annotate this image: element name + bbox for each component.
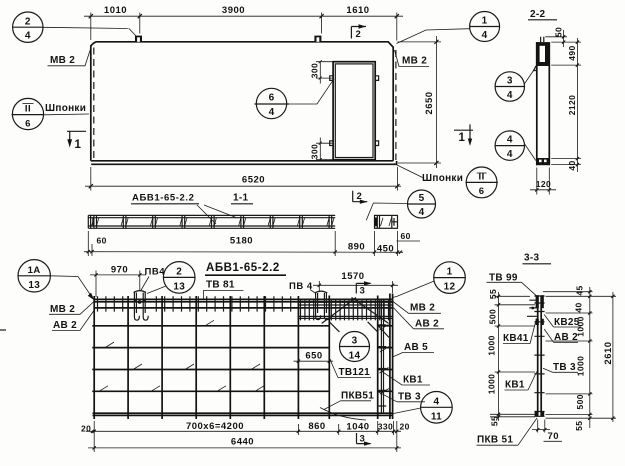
svg-text:АВ 2: АВ 2 (554, 332, 578, 343)
svg-text:1-1: 1-1 (233, 193, 248, 204)
svg-text:1: 1 (459, 132, 466, 144)
svg-text:ПВ 4: ПВ 4 (289, 281, 313, 292)
svg-text:700х6=4200: 700х6=4200 (186, 421, 244, 432)
svg-text:АБВ1-65-2.2: АБВ1-65-2.2 (206, 262, 280, 274)
svg-text:4: 4 (507, 135, 513, 146)
svg-text:АВ 5: АВ 5 (404, 342, 428, 353)
svg-text:20: 20 (400, 422, 410, 432)
svg-text:3-3: 3-3 (524, 253, 539, 264)
svg-text:3: 3 (352, 336, 358, 347)
svg-text:6: 6 (479, 186, 485, 197)
svg-text:12: 12 (444, 282, 456, 293)
svg-text:2610: 2610 (603, 341, 614, 364)
svg-text:55: 55 (490, 416, 500, 426)
svg-text:ТВ 99: ТВ 99 (489, 273, 518, 284)
svg-text:6: 6 (269, 93, 275, 104)
svg-text:60: 60 (401, 231, 411, 241)
svg-text:500: 500 (488, 309, 498, 324)
svg-text:890: 890 (348, 242, 365, 253)
svg-text:АВ 2: АВ 2 (53, 320, 77, 331)
svg-text:1: 1 (447, 267, 453, 278)
svg-text:1610: 1610 (346, 5, 369, 16)
svg-text:13: 13 (28, 280, 40, 291)
svg-text:55: 55 (488, 289, 498, 299)
svg-text:970: 970 (111, 264, 128, 275)
svg-text:Шпонки: Шпонки (422, 173, 463, 184)
svg-text:МВ 2: МВ 2 (50, 304, 75, 315)
svg-text:2: 2 (357, 191, 363, 202)
svg-text:КВ1: КВ1 (505, 380, 525, 391)
svg-text:330: 330 (378, 422, 393, 432)
svg-text:1000: 1000 (576, 356, 586, 377)
svg-text:4: 4 (269, 107, 275, 118)
svg-text:2120: 2120 (567, 95, 577, 116)
svg-text:2: 2 (356, 29, 362, 40)
svg-text:1: 1 (75, 139, 82, 151)
svg-text:120: 120 (536, 179, 551, 189)
svg-text:650: 650 (305, 351, 322, 362)
svg-text:6440: 6440 (231, 437, 254, 448)
svg-text:2: 2 (176, 267, 182, 278)
svg-text:ПКВ 51: ПКВ 51 (477, 435, 513, 446)
svg-text:АВ 2: АВ 2 (415, 319, 439, 330)
svg-text:45: 45 (575, 285, 585, 295)
svg-text:1000: 1000 (487, 335, 497, 356)
svg-text:300: 300 (310, 63, 320, 78)
svg-text:1: 1 (482, 16, 488, 27)
svg-text:КВ25: КВ25 (554, 317, 580, 328)
svg-text:1040: 1040 (346, 422, 369, 433)
svg-text:КВ41: КВ41 (503, 333, 529, 344)
svg-text:3: 3 (360, 434, 366, 445)
svg-text:300: 300 (310, 144, 320, 159)
svg-text:ТВ121: ТВ121 (339, 367, 371, 378)
svg-text:50: 50 (554, 27, 564, 37)
svg-text:Шпонки: Шпонки (45, 103, 86, 114)
svg-text:490: 490 (567, 45, 577, 60)
svg-text:40: 40 (567, 160, 577, 170)
svg-text:2650: 2650 (424, 91, 435, 114)
svg-text:МВ 2: МВ 2 (402, 56, 427, 67)
svg-text:20: 20 (81, 424, 91, 434)
svg-text:1570: 1570 (341, 271, 364, 282)
svg-text:14: 14 (349, 351, 361, 362)
svg-text:3: 3 (507, 76, 513, 87)
svg-text:4: 4 (25, 31, 31, 42)
svg-text:5180: 5180 (230, 236, 253, 247)
svg-text:ТВ 81: ТВ 81 (206, 280, 235, 291)
svg-text:55: 55 (574, 421, 584, 431)
svg-text:4: 4 (482, 30, 488, 41)
svg-text:4: 4 (507, 90, 513, 101)
svg-text:1010: 1010 (104, 5, 127, 16)
svg-text:МВ 2: МВ 2 (410, 303, 435, 314)
svg-text:6: 6 (25, 119, 31, 130)
svg-text:500: 500 (575, 394, 585, 409)
svg-text:II: II (25, 104, 31, 115)
svg-text:4: 4 (419, 207, 425, 218)
svg-text:3: 3 (360, 286, 366, 297)
svg-text:3900: 3900 (222, 5, 245, 16)
svg-text:11: 11 (431, 412, 442, 423)
svg-text:60: 60 (97, 236, 107, 246)
svg-text:2-2: 2-2 (530, 9, 545, 20)
svg-text:5: 5 (419, 193, 425, 204)
svg-text:1А: 1А (28, 265, 41, 276)
svg-text:860: 860 (308, 421, 325, 432)
svg-text:ПКВ51: ПКВ51 (341, 391, 374, 402)
svg-text:450: 450 (377, 244, 394, 255)
svg-text:АБВ1-65-2.2: АБВ1-65-2.2 (132, 193, 195, 204)
svg-text:6520: 6520 (242, 175, 265, 186)
svg-text:13: 13 (173, 282, 185, 293)
svg-text:ПВ4: ПВ4 (145, 267, 166, 278)
svg-text:70: 70 (548, 431, 560, 442)
svg-text:4: 4 (507, 149, 513, 160)
svg-text:ТВ 3: ТВ 3 (398, 392, 421, 403)
svg-text:КВ1: КВ1 (403, 375, 423, 386)
svg-text:40: 40 (574, 302, 584, 312)
svg-text:2: 2 (25, 17, 31, 28)
svg-text:ТВ 3: ТВ 3 (553, 362, 576, 373)
svg-text:МВ 2: МВ 2 (50, 55, 75, 66)
svg-text:1000: 1000 (487, 374, 497, 395)
svg-text:4: 4 (433, 397, 439, 408)
